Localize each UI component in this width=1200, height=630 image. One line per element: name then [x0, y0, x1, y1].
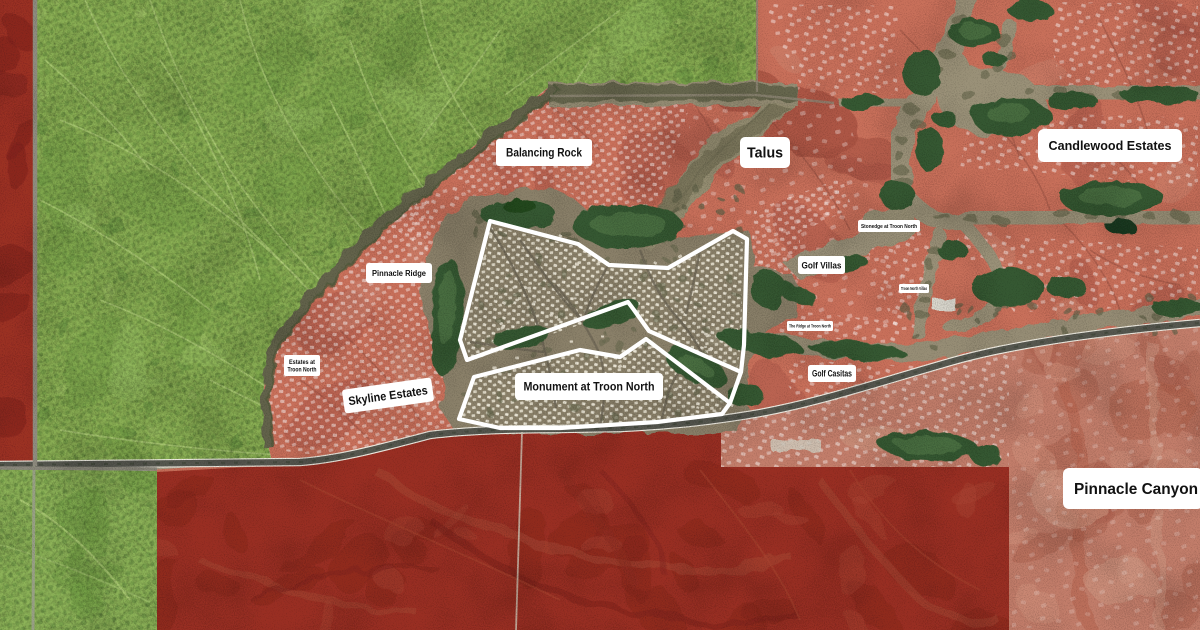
svg-text:Golf Villas: Golf Villas: [802, 260, 842, 271]
svg-text:Candlewood Estates: Candlewood Estates: [1049, 138, 1172, 153]
svg-text:Talus: Talus: [747, 146, 783, 162]
svg-text:Pinnacle Canyon: Pinnacle Canyon: [1074, 481, 1198, 498]
svg-text:Golf Casitas: Golf Casitas: [812, 369, 852, 379]
svg-text:Troon North Villas: Troon North Villas: [901, 286, 927, 291]
svg-text:Monument at Troon North: Monument at Troon North: [524, 380, 655, 394]
svg-text:Pinnacle Ridge: Pinnacle Ridge: [372, 269, 427, 278]
svg-text:The Ridge at Troon North: The Ridge at Troon North: [789, 324, 831, 329]
svg-text:Estates at: Estates at: [289, 360, 315, 366]
svg-text:Troon North: Troon North: [288, 367, 317, 373]
svg-text:Stonedge at Troon North: Stonedge at Troon North: [861, 224, 918, 230]
svg-text:Balancing Rock: Balancing Rock: [506, 148, 583, 160]
